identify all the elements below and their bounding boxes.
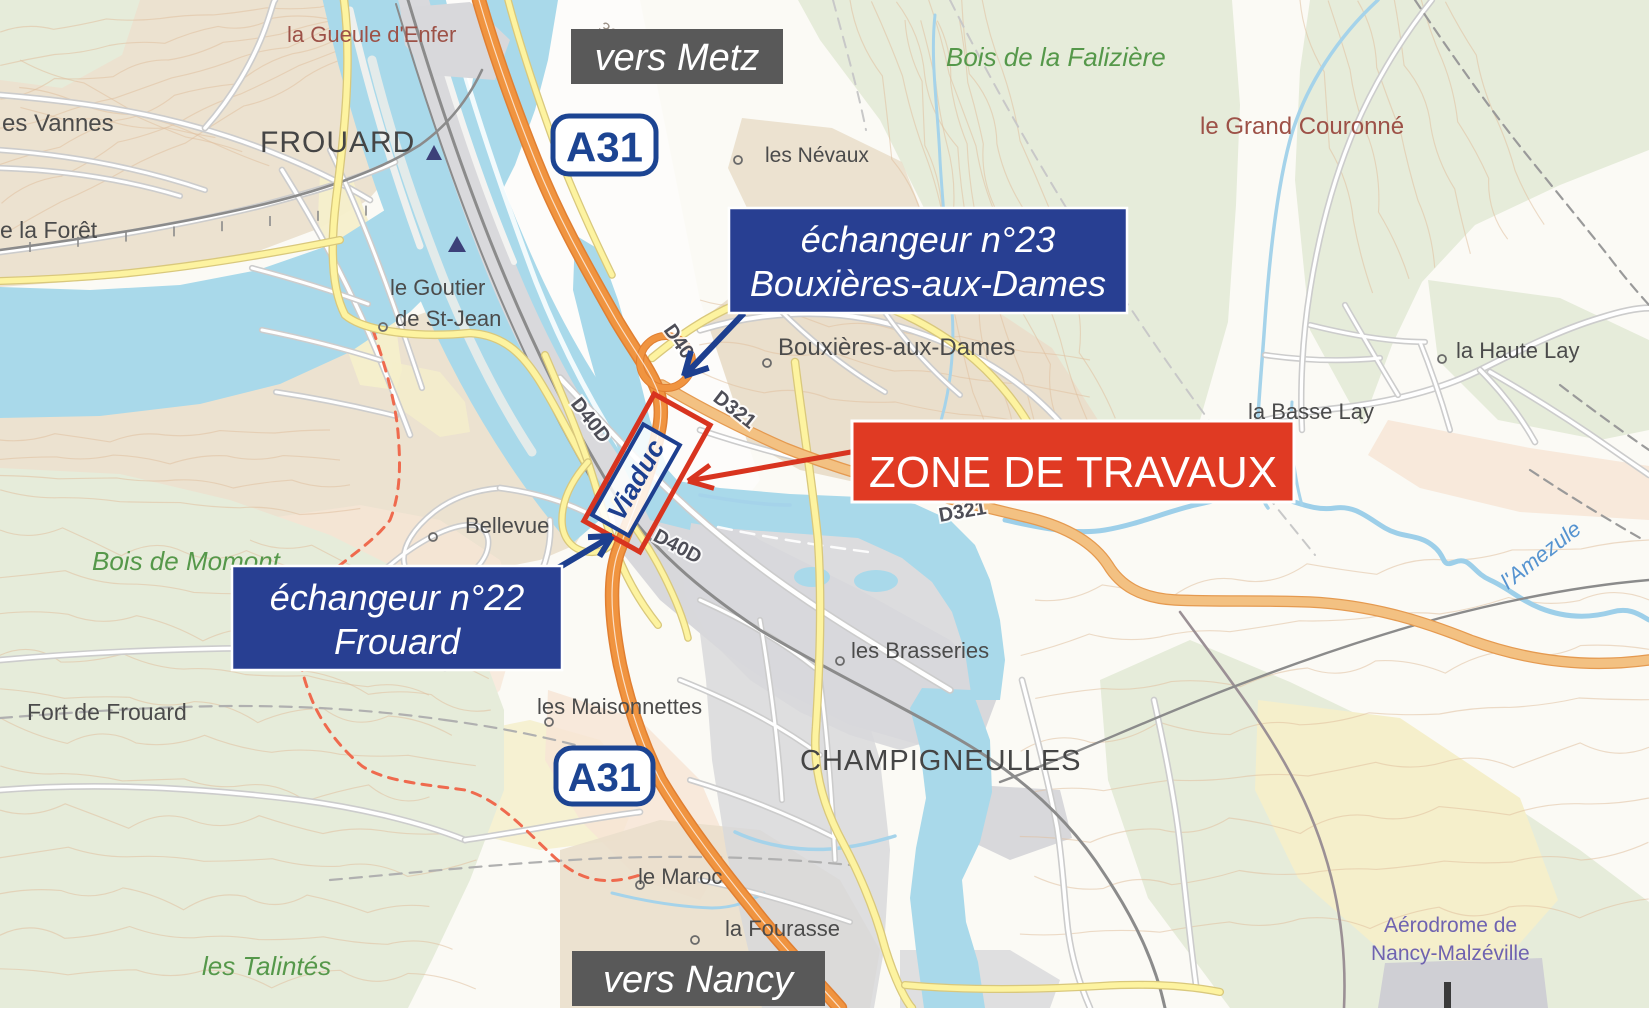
svg-text:ZONE DE TRAVAUX: ZONE DE TRAVAUX [869, 448, 1277, 497]
svg-text:vers Metz: vers Metz [595, 37, 760, 79]
svg-text:Bouxières-aux-Dames: Bouxières-aux-Dames [750, 263, 1106, 304]
svg-text:échangeur n°22: échangeur n°22 [270, 577, 525, 618]
svg-text:le Maroc: le Maroc [638, 864, 722, 889]
svg-text:le Goutier: le Goutier [390, 275, 485, 300]
svg-text:de St-Jean: de St-Jean [395, 306, 501, 331]
svg-text:la Fourasse: la Fourasse [725, 916, 840, 941]
svg-text:les Talintés: les Talintés [202, 951, 331, 981]
svg-text:échangeur n°23: échangeur n°23 [801, 219, 1056, 260]
svg-text:les Maisonnettes: les Maisonnettes [537, 694, 702, 719]
svg-text:CHAMPIGNEULLES: CHAMPIGNEULLES [800, 745, 1082, 777]
svg-text:e la Forêt: e la Forêt [0, 217, 98, 243]
svg-text:Fort de Frouard: Fort de Frouard [27, 699, 187, 725]
svg-text:la Gueule d'Enfer: la Gueule d'Enfer [287, 22, 456, 47]
svg-text:Nancy-Malzéville: Nancy-Malzéville [1371, 942, 1530, 965]
svg-text:la Haute Lay: la Haute Lay [1456, 338, 1580, 363]
svg-text:le Grand Couronné: le Grand Couronné [1200, 113, 1404, 140]
svg-text:Bois de la Falizière: Bois de la Falizière [946, 42, 1166, 72]
svg-text:les Névaux: les Névaux [765, 144, 869, 167]
svg-text:les Brasseries: les Brasseries [851, 638, 989, 663]
svg-text:FROUARD: FROUARD [260, 126, 415, 159]
svg-text:Frouard: Frouard [334, 621, 461, 662]
svg-text:Bellevue: Bellevue [465, 513, 549, 538]
svg-text:vers Nancy: vers Nancy [603, 959, 795, 1001]
svg-text:A31: A31 [566, 124, 643, 171]
svg-text:Aérodrome de: Aérodrome de [1384, 914, 1517, 937]
svg-text:A31: A31 [568, 756, 641, 800]
svg-text:Bouxières-aux-Dames: Bouxières-aux-Dames [778, 334, 1015, 361]
svg-text:es Vannes: es Vannes [2, 110, 114, 137]
